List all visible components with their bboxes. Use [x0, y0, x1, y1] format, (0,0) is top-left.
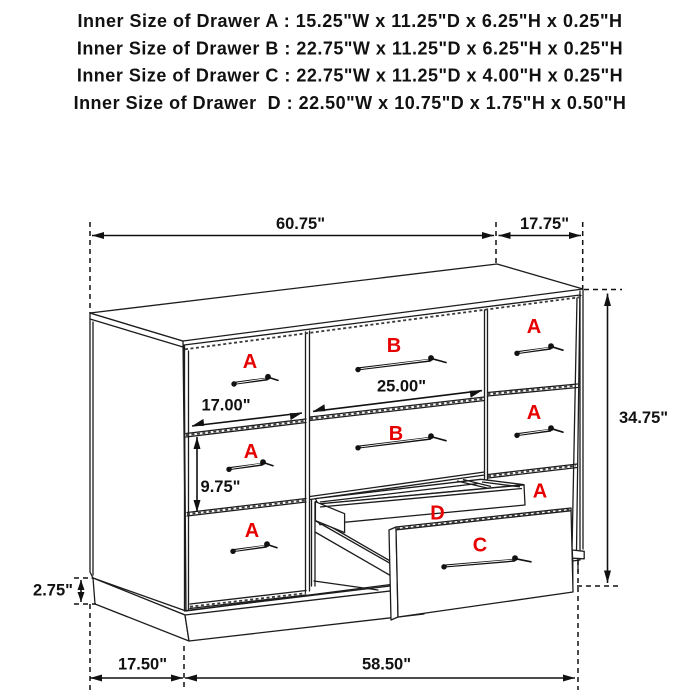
svg-text:17.50": 17.50": [118, 656, 167, 674]
svg-text:A: A: [244, 441, 258, 463]
svg-text:Inner Size of Drawer A : 15.25: Inner Size of Drawer A : 15.25"W x 11.25…: [77, 11, 622, 31]
svg-text:60.75": 60.75": [276, 215, 325, 233]
svg-text:17.75": 17.75": [520, 215, 569, 233]
svg-text:34.75": 34.75": [619, 409, 668, 427]
svg-text:D: D: [430, 503, 444, 525]
svg-text:A: A: [245, 520, 259, 542]
svg-text:B: B: [387, 335, 401, 357]
svg-text:25.00": 25.00": [377, 378, 426, 396]
svg-text:A: A: [243, 351, 257, 373]
svg-text:A: A: [527, 316, 541, 338]
svg-text:Inner Size of Drawer B : 22.75: Inner Size of Drawer B : 22.75"W x 11.25…: [77, 39, 623, 59]
svg-text:B: B: [389, 423, 403, 445]
svg-text:C: C: [473, 535, 487, 557]
svg-text:Inner Size of Drawer C : 22.75: Inner Size of Drawer C : 22.75"W x 11.25…: [77, 66, 623, 86]
svg-text:A: A: [533, 481, 547, 503]
svg-text:A: A: [527, 402, 541, 424]
svg-text:2.75": 2.75": [33, 582, 73, 600]
svg-text:58.50": 58.50": [362, 656, 411, 674]
svg-text:Inner Size of Drawer D : 22.5: Inner Size of Drawer D : 22.50"W x 10.75…: [74, 93, 627, 113]
svg-text:9.75": 9.75": [201, 478, 241, 496]
svg-text:17.00": 17.00": [201, 397, 250, 415]
